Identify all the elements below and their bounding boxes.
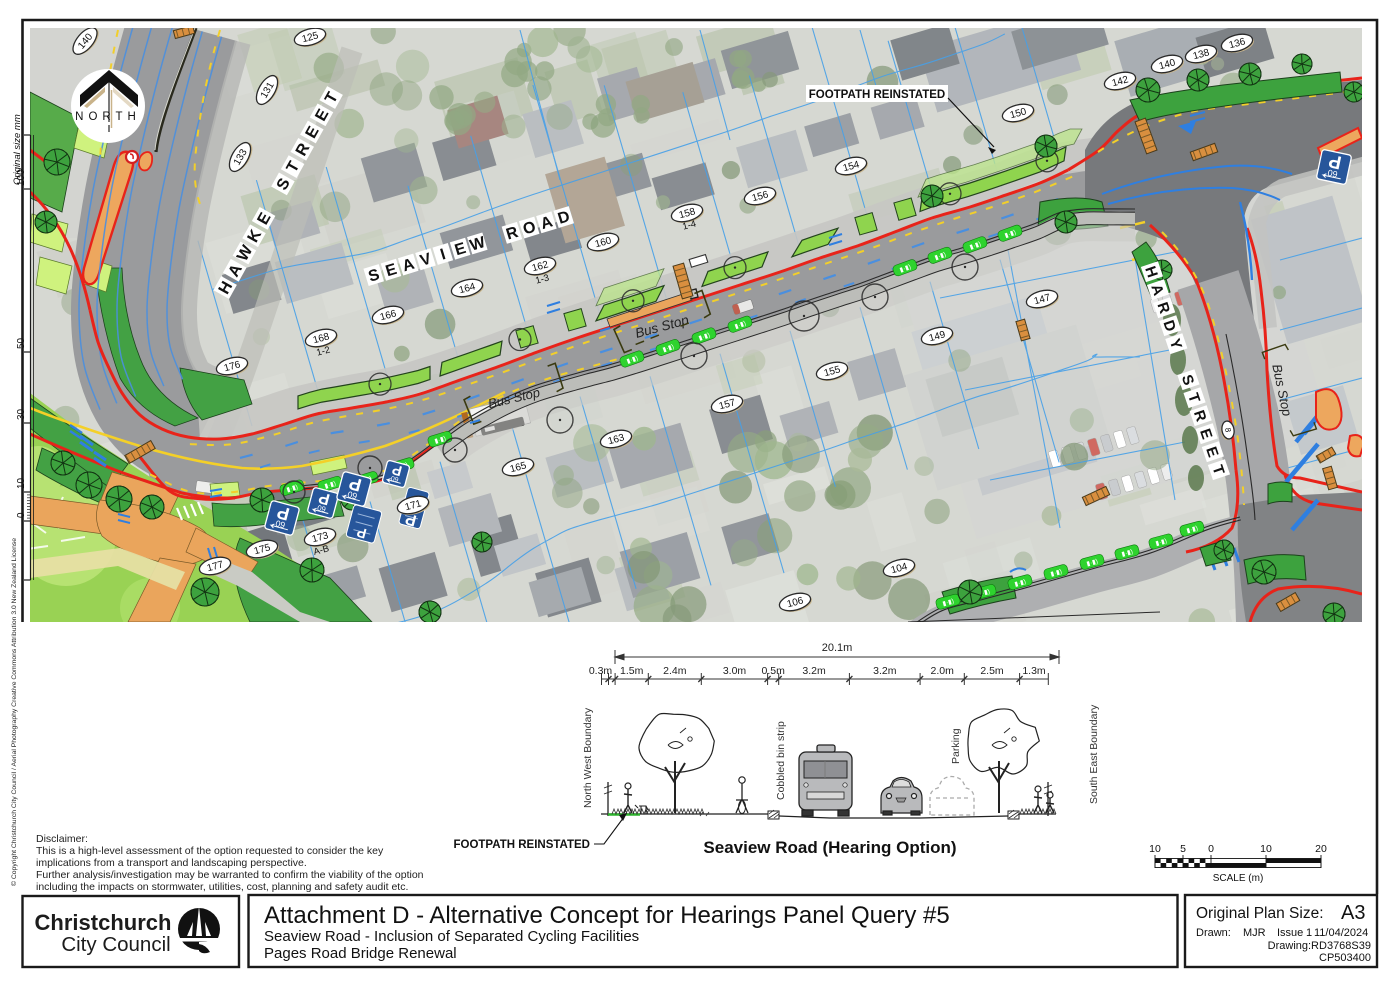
svg-text:A3: A3 [1341,902,1365,924]
svg-text:Attachment D - Alternative Con: Attachment D - Alternative Concept for H… [264,902,950,929]
svg-text:0: 0 [1208,843,1214,855]
svg-text:1.5m: 1.5m [620,665,644,677]
svg-text:11/04/2024: 11/04/2024 [1314,927,1368,939]
svg-text:Pages Road Bridge Renewal: Pages Road Bridge Renewal [264,945,457,962]
svg-text:Original size mm: Original size mm [12,114,23,185]
svg-text:implications from a transport: implications from a transport and landsc… [36,857,307,869]
svg-text:2.4m: 2.4m [663,665,687,677]
svg-text:2.5m: 2.5m [980,665,1004,677]
svg-text:3.0m: 3.0m [723,665,747,677]
svg-text:This is a high-level assessmen: This is a high-level assessment of the o… [36,845,384,857]
svg-text:North West Boundary: North West Boundary [582,707,594,808]
svg-text:0.5m: 0.5m [762,665,786,677]
svg-text:5: 5 [1180,843,1186,855]
svg-text:Seaview Road - Inclusion of Se: Seaview Road - Inclusion of Separated Cy… [264,928,639,945]
svg-text:2.0m: 2.0m [931,665,955,677]
svg-text:3.2m: 3.2m [873,665,897,677]
svg-text:Parking: Parking [950,728,962,764]
svg-text:NORTH: NORTH [75,111,141,123]
svg-text:Drawn:: Drawn: [1196,927,1231,939]
svg-text:MJR: MJR [1243,927,1266,939]
svg-text:Disclaimer:: Disclaimer: [36,833,88,845]
svg-text:© Copyright Christchurch City: © Copyright Christchurch City Council / … [10,538,18,886]
svg-text:SCALE (m): SCALE (m) [1213,873,1264,884]
svg-text:10: 10 [1260,843,1272,855]
svg-text:1: 1 [1306,927,1312,939]
svg-text:10: 10 [1149,843,1161,855]
svg-text:including the impacts on storm: including the impacts on stormwater, uti… [36,881,408,893]
svg-text:0: 0 [16,512,27,518]
svg-text:3.2m: 3.2m [802,665,826,677]
svg-text:10: 10 [16,477,27,489]
svg-text:20: 20 [1315,843,1327,855]
svg-text:FOOTPATH REINSTATED: FOOTPATH REINSTATED [809,89,946,101]
svg-text:1.3m: 1.3m [1022,665,1046,677]
svg-text:Further analysis/investigation: Further analysis/investigation may be wa… [36,869,424,881]
svg-text:Original Plan Size:: Original Plan Size: [1196,905,1324,922]
svg-text:Seaview Road (Hearing Option): Seaview Road (Hearing Option) [703,838,956,857]
svg-text:FOOTPATH REINSTATED: FOOTPATH REINSTATED [453,839,590,851]
svg-text:South East Boundary: South East Boundary [1088,704,1100,804]
svg-text:Cobbled bin strip: Cobbled bin strip [775,721,787,800]
svg-text:Christchurch: Christchurch [35,910,172,935]
svg-text:CP503400: CP503400 [1319,952,1371,964]
svg-text:50: 50 [16,337,27,349]
svg-text:30: 30 [16,408,27,420]
svg-text:Issue: Issue [1277,927,1303,939]
svg-text:0.3m: 0.3m [589,665,613,677]
svg-text:20.1m: 20.1m [822,642,853,654]
svg-text:Drawing:RD3768S39: Drawing:RD3768S39 [1268,940,1371,952]
svg-text:City Council: City Council [61,933,170,956]
